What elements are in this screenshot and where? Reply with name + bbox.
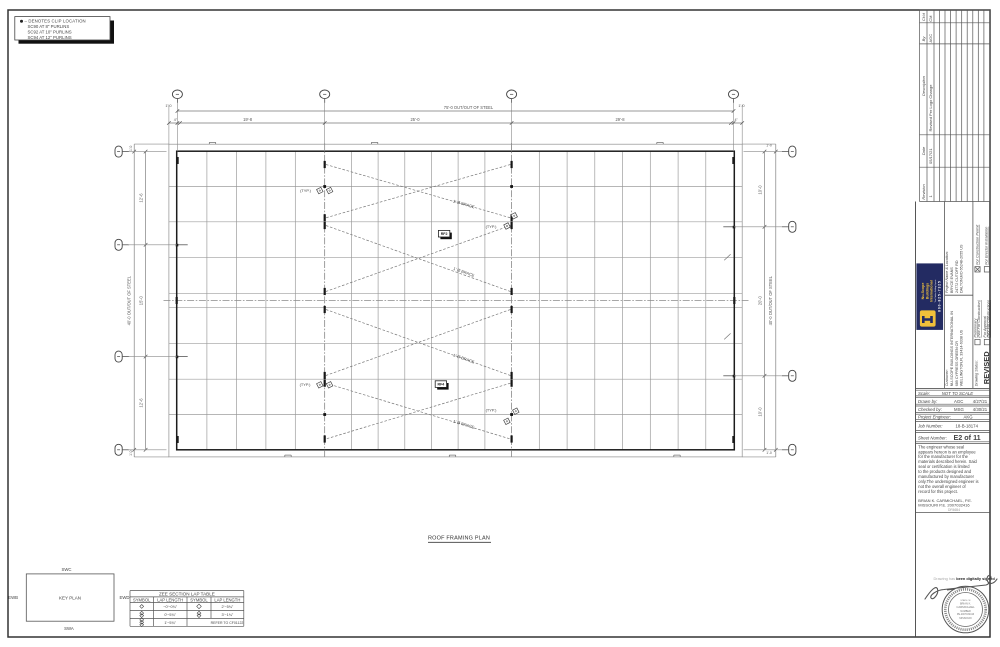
svg-text:SYMBOL: SYMBOL [190,598,208,603]
svg-text:1'-0: 1'-0 [129,450,133,456]
svg-text:REFER TO CF01122: REFER TO CF01122 [211,621,244,625]
svg-text:MSG: MSG [954,407,964,412]
svg-text:LAP LENGTH: LAP LENGTH [214,598,240,603]
svg-text:NU-SCOPE BUILDINGS INTERNATION: NU-SCOPE BUILDINGS INTERNATIONAL IN [950,311,954,387]
svg-text:SWC: SWC [61,567,71,572]
svg-text:Customer:: Customer: [945,369,949,386]
svg-text:SC94 AT 12" PURLINS: SC94 AT 12" PURLINS [28,35,72,40]
svg-text:E2 of 11: E2 of 11 [954,433,981,442]
svg-text:CARMICHAEL: CARMICHAEL [956,605,975,609]
svg-text:1'-0: 1'-0 [766,451,772,455]
svg-text:Project Name & Location:: Project Name & Location: [945,251,949,293]
svg-text:Drawing has been digitally sig: Drawing has been digitally signed [934,576,996,581]
svg-text:LAP LENGTH: LAP LENGTH [157,598,183,603]
svg-text:Ck'd: Ck'd [921,12,926,21]
svg-text:(TYP.): (TYP.) [300,382,311,387]
svg-text:RF4: RF4 [438,383,445,387]
svg-text:4/30/21: 4/30/21 [973,407,988,412]
svg-text:Checked by:: Checked by: [918,407,943,412]
svg-text:DR6654: DR6654 [948,508,960,512]
svg-text:75'-0 OUT/OUT OF STEEL: 75'-0 OUT/OUT OF STEEL [444,105,494,110]
svg-text:(TYP.): (TYP.) [486,408,497,413]
svg-text:WELLINGTON,FL 33414-6338 US: WELLINGTON,FL 33414-6338 US [960,329,964,386]
svg-text:(Not For Construction): (Not For Construction) [977,299,981,337]
svg-text:For Construction Permit: For Construction Permit [975,224,979,265]
svg-text:−0'−0¾": −0'−0¾" [163,605,178,609]
svg-text:CM: CM [928,16,933,22]
svg-text:12'-6: 12'-6 [139,398,144,408]
svg-text:3'−1¾": 3'−1¾" [222,613,234,617]
svg-text:1'-0: 1'-0 [165,104,171,108]
svg-text:EWD: EWD [120,595,130,600]
svg-text:10'-0: 10'-0 [758,185,763,195]
svg-text:MISSOURI P.E. 2007032416: MISSOURI P.E. 2007032416 [918,502,970,507]
svg-text:18-B-18174: 18-B-18174 [956,424,979,429]
svg-text:Drawn by:: Drawn by: [918,399,938,404]
svg-text:RF2: RF2 [441,232,448,236]
svg-text:0'−5¾": 0'−5¾" [164,613,176,617]
svg-text:AGC: AGC [954,399,963,404]
svg-text:BRYCE EVANS: BRYCE EVANS [950,267,954,293]
svg-text:40'-0 OUT/OUT OF STEEL: 40'-0 OUT/OUT OF STEEL [768,275,773,325]
svg-text:15'-0: 15'-0 [139,295,144,305]
svg-text:REVISED: REVISED [982,351,991,385]
svg-text:25'-0: 25'-0 [411,117,421,122]
svg-text:KEY PLAN: KEY PLAN [59,596,81,601]
svg-text:(TYP.): (TYP.) [486,224,497,229]
svg-text:19'-8: 19'-8 [243,117,253,122]
svg-text:4/27/21: 4/27/21 [973,399,988,404]
svg-text:For Erector Installation: For Erector Installation [985,227,989,265]
svg-text:NOT TO SCALE: NOT TO SCALE [942,391,974,396]
svg-text:STATE OF: STATE OF [960,599,971,602]
svg-text:International: International [930,280,934,302]
svg-text:ZEE SECTION LAP TABLE: ZEE SECTION LAP TABLE [159,592,215,597]
svg-text:Sheet Number:: Sheet Number: [918,436,948,441]
svg-text:05/17/21: 05/17/21 [928,148,933,164]
svg-text:record for this project.: record for this project. [918,489,958,494]
svg-text:Revision: Revision [921,184,926,200]
svg-text:Date: Date [921,146,926,155]
svg-text:Your Outdoor Building Experts: Your Outdoor Building Experts [934,280,937,303]
svg-text:Scale:: Scale: [918,391,931,396]
svg-text:1'-0: 1'-0 [129,145,133,151]
svg-text:1'-0: 1'-0 [766,144,772,148]
svg-text:– DENOTES CLIP LOCATION: – DENOTES CLIP LOCATION [25,19,86,24]
svg-text:8 0 0 - 8 2 5 - 7 3 2 5: 8 0 0 - 8 2 5 - 7 3 2 5 [938,281,942,312]
svg-text:2'−5¾": 2'−5¾" [222,605,234,609]
svg-text:Project Engineer:: Project Engineer: [918,414,952,419]
svg-text:SC92 AT 10" PURLINS: SC92 AT 10" PURLINS [28,30,72,35]
svg-text:Drawing Status:: Drawing Status: [975,360,979,386]
svg-text:24772 CUTOFF RD: 24772 CUTOFF RD [955,260,959,293]
svg-text:Revised Per Logo Change: Revised Per Logo Change [928,84,933,132]
svg-text:Job Number:: Job Number: [917,424,943,429]
svg-text:20'-0: 20'-0 [758,295,763,305]
svg-text:Description: Description [921,75,926,96]
svg-text:12'-6: 12'-6 [139,193,144,203]
svg-text:SC90 AT 8" PURLINS: SC90 AT 8" PURLINS [28,24,70,29]
svg-text:PE-2007032416: PE-2007032416 [957,613,975,616]
svg-text:EWB: EWB [8,595,18,600]
svg-text:29'-8: 29'-8 [616,117,626,122]
svg-text:1'−5¾": 1'−5¾" [164,621,176,625]
svg-text:689 CYPRESS GREEN CR: 689 CYPRESS GREEN CR [955,341,959,387]
svg-text:AGC: AGC [928,34,933,43]
svg-text:(TYP.): (TYP.) [300,188,311,193]
svg-text:SWA: SWA [64,626,74,631]
svg-text:DALTON,MO 65248-2055 US: DALTON,MO 65248-2055 US [960,244,964,293]
svg-text:1'-0: 1'-0 [738,104,744,108]
svg-text:MISSOURI: MISSOURI [959,617,972,620]
svg-text:ROOF FRAMING PLAN: ROOF FRAMING PLAN [428,536,490,542]
svg-text:(Not For Construction): (Not For Construction) [987,299,991,337]
svg-text:10'-0: 10'-0 [758,407,763,417]
svg-text:AKG: AKG [964,414,974,419]
svg-text:SYMBOL: SYMBOL [133,598,151,603]
svg-text:40'-0 OUT/OUT OF STEEL: 40'-0 OUT/OUT OF STEEL [126,275,131,325]
